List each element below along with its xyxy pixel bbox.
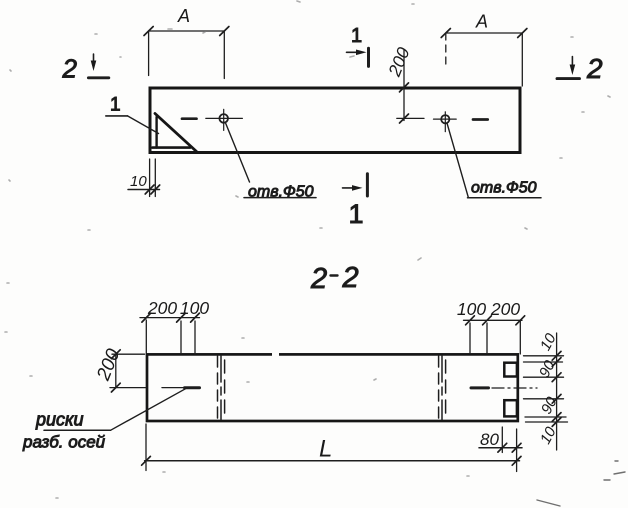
svg-text:1: 1 [110, 95, 121, 116]
svg-text:1: 1 [351, 25, 362, 47]
svg-text:А: А [177, 6, 190, 26]
svg-text:200: 200 [490, 299, 520, 319]
svg-text:2: 2 [342, 262, 359, 294]
svg-text:А: А [475, 12, 488, 32]
svg-text:1: 1 [349, 199, 364, 229]
svg-text:100: 100 [180, 298, 209, 318]
svg-text:2: 2 [62, 54, 78, 84]
svg-text:L: L [319, 436, 332, 463]
svg-text:100: 100 [457, 299, 486, 319]
svg-text:200: 200 [147, 298, 177, 318]
svg-text:риски: риски [35, 410, 84, 430]
svg-text:2: 2 [310, 263, 327, 295]
svg-text:200: 200 [93, 346, 125, 385]
svg-text:разб. осей: разб. осей [22, 433, 106, 452]
svg-text:80: 80 [480, 430, 499, 449]
svg-text:10: 10 [130, 173, 147, 190]
svg-text:отв.Ф50: отв.Ф50 [471, 180, 537, 197]
svg-text:2: 2 [586, 53, 603, 84]
svg-text:200: 200 [384, 44, 414, 80]
